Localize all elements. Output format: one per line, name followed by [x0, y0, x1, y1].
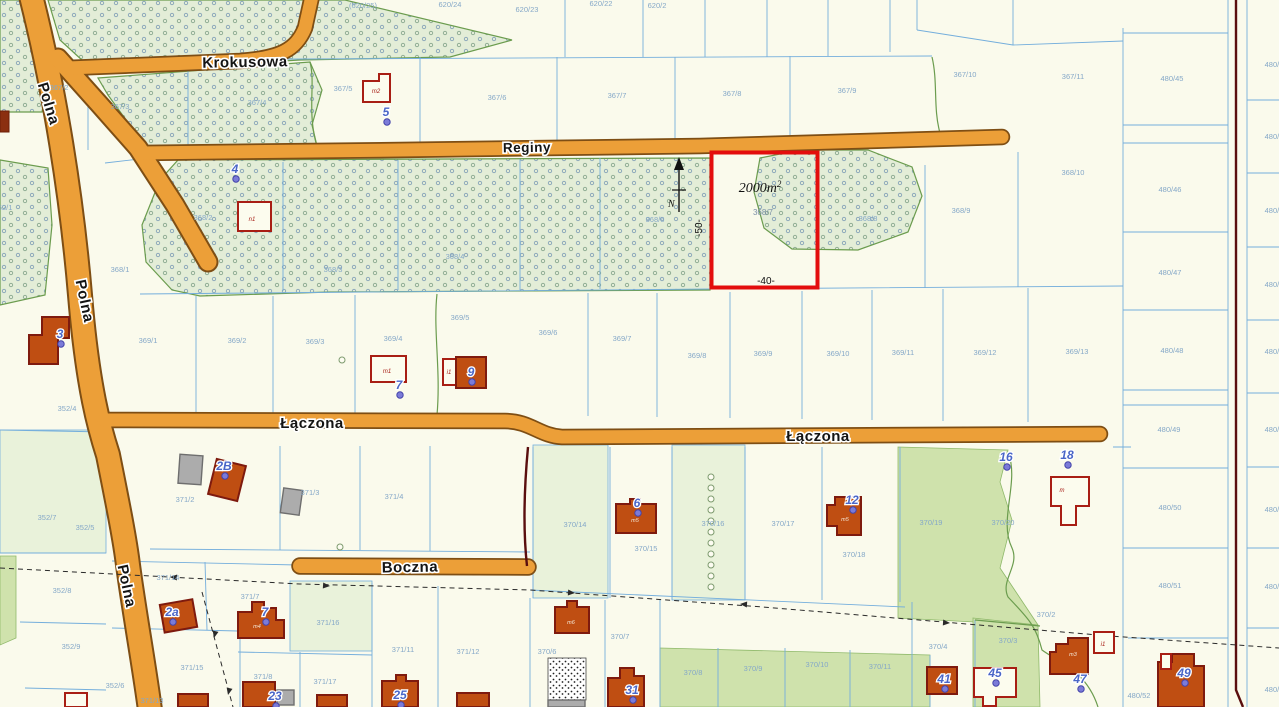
- building-bottom-left: [65, 693, 87, 707]
- house-number: 3: [57, 327, 64, 341]
- house-number: 12: [845, 493, 859, 507]
- house-number: 9: [468, 365, 475, 379]
- survey-circle: [708, 562, 714, 568]
- house-number: 6: [634, 496, 641, 510]
- parcel-label: 370/15: [635, 544, 658, 553]
- house-number: 23: [267, 689, 282, 703]
- parcel-label: 369/6: [539, 328, 558, 337]
- parcel-371-16-green: [290, 581, 372, 651]
- parcel-label: 369/7: [613, 334, 632, 343]
- building-label: m5: [631, 518, 640, 524]
- building-label: m3: [1069, 652, 1078, 658]
- parcel-label: 369/4: [384, 334, 403, 343]
- parcel-label: 371/4: [385, 492, 404, 501]
- house-number: 16: [999, 450, 1013, 464]
- house-number-marker: [58, 341, 64, 347]
- parcel-label: 369/1: [139, 336, 158, 345]
- building-west-edge: [0, 111, 9, 132]
- house-number-marker: [222, 473, 228, 479]
- house-number-marker: [273, 703, 279, 707]
- parcel-label: 370/17: [772, 519, 795, 528]
- house-number-marker: [850, 507, 856, 513]
- survey-circle: [708, 529, 714, 535]
- survey-circle: [708, 540, 714, 546]
- survey-circle: [708, 551, 714, 557]
- parcel-label: 620/23: [516, 5, 539, 14]
- survey-circle: [708, 573, 714, 579]
- building-label: i1: [447, 370, 452, 376]
- building-bottom-2: [317, 695, 347, 707]
- parcel-label: 480/4: [1265, 347, 1279, 356]
- survey-circle: [708, 584, 714, 590]
- orchard-368-row: [142, 158, 710, 296]
- house-number: 45: [987, 666, 1002, 680]
- parcel-label: 480/4: [1265, 582, 1279, 591]
- house-number-marker: [942, 686, 948, 692]
- building-label: n1: [249, 217, 256, 223]
- map-canvas[interactable]: (620/25)620/24620/23620/22620/2367/2367/…: [0, 0, 1279, 707]
- parcel-label: 352/1: [0, 203, 12, 212]
- parcel-label: 480/4: [1265, 505, 1279, 514]
- parcel-label: 370/7: [611, 632, 630, 641]
- house-number-marker: [1065, 462, 1071, 468]
- bottom-strip-green: [660, 648, 930, 707]
- building-under-construction: [548, 658, 586, 700]
- survey-circle: [708, 496, 714, 502]
- parcel-label: 370/6: [538, 647, 557, 656]
- parcel-label: 370/3: [999, 636, 1018, 645]
- survey-circle: [337, 544, 343, 550]
- parcel-label: 370/8: [684, 668, 703, 677]
- parcel-label: 370/10: [806, 660, 829, 669]
- house-number-marker: [635, 510, 641, 516]
- building-gray-1: [178, 454, 203, 485]
- parcel-label: 352/6: [106, 681, 125, 690]
- building-bottom-gray: [548, 700, 585, 707]
- parcel-label: 371/2: [176, 495, 195, 504]
- highlight-depth-label: -50-: [694, 219, 705, 237]
- parcel-label: 371/16: [317, 618, 340, 627]
- parcel-label: 371/15: [181, 663, 204, 672]
- house-number: 31: [625, 683, 639, 697]
- parcel-label: 480/45: [1161, 74, 1184, 83]
- house-number: 41: [936, 672, 951, 686]
- house-number-marker: [1004, 464, 1010, 470]
- building-gray-2: [280, 488, 302, 515]
- parcel-label: 368/4: [446, 252, 465, 261]
- parcel-label: 480/4: [1265, 206, 1279, 215]
- highlight-area-label: 2000m2: [739, 179, 782, 196]
- house-number-marker: [398, 702, 404, 707]
- parcel-label: 371/3: [301, 488, 320, 497]
- parcel-label: 369/13: [1066, 347, 1089, 356]
- parcel-label: 370/4: [929, 642, 948, 651]
- parcel-label: 352/5: [76, 523, 95, 532]
- orchard-west-strip: [0, 160, 52, 305]
- parcel-label: 480/4: [1265, 60, 1279, 69]
- parcel-label: 371/17: [314, 677, 337, 686]
- street-label: Łączona: [280, 415, 344, 432]
- parcel-label: 480/49: [1158, 425, 1181, 434]
- parcel-label: 369/12: [974, 348, 997, 357]
- parcel-label: 368/1: [111, 265, 130, 274]
- survey-circle: [708, 507, 714, 513]
- cadastral-map[interactable]: (620/25)620/24620/23620/22620/2367/2367/…: [0, 0, 1279, 707]
- parcel-label: 480/4: [1265, 280, 1279, 289]
- parcel-label: 480/47: [1159, 268, 1182, 277]
- parcel-label: 371/7: [241, 592, 260, 601]
- parcel-label: 370/16: [702, 519, 725, 528]
- parcel-label: 367/7: [608, 91, 627, 100]
- survey-circle: [708, 485, 714, 491]
- parcel-label: 352/4: [58, 404, 77, 413]
- parcel-label: 367/5: [334, 84, 353, 93]
- parcel-label: 352/9: [62, 642, 81, 651]
- parcel-label: 369/9: [754, 349, 773, 358]
- house-number-marker: [263, 619, 269, 625]
- parcel-label: 370/14: [564, 520, 587, 529]
- building-bottom-3: [457, 693, 489, 707]
- parcel-label: 480/50: [1159, 503, 1182, 512]
- parcel-label: 371/14: [157, 573, 180, 582]
- house-number: 18: [1060, 448, 1074, 462]
- parcel-label: 480/52: [1128, 691, 1151, 700]
- street-label: Łączona: [786, 428, 850, 445]
- parcel-label: 371/8: [254, 672, 273, 681]
- house-number: 25: [392, 688, 407, 702]
- parcel-label: 368/6: [646, 215, 665, 224]
- house-number: 47: [1072, 672, 1088, 686]
- parcel-label: (620/25): [349, 1, 377, 10]
- survey-circle: [339, 357, 345, 363]
- green-sliver-west: [0, 556, 16, 645]
- building-label: m: [1060, 488, 1065, 494]
- survey-circle: [708, 474, 714, 480]
- building-label: m4: [253, 624, 261, 630]
- house-number-marker: [1182, 680, 1188, 686]
- parcel-label: 369/10: [827, 349, 850, 358]
- building-label: m1: [383, 369, 391, 375]
- house-number-marker: [170, 619, 176, 625]
- street-label: Reginy: [503, 140, 551, 156]
- house-number-marker: [993, 680, 999, 686]
- parcel-label: 371/13: [141, 696, 164, 705]
- parcel-label: 368/2: [194, 213, 213, 222]
- parcel-label: 620/22: [590, 0, 613, 8]
- parcel-label: 367/9: [838, 86, 857, 95]
- parcel-label: 369/5: [451, 313, 470, 322]
- parcel-label: 480/46: [1159, 185, 1182, 194]
- parcel-label: 480/6: [1265, 685, 1279, 694]
- parcel-label: 367/4: [248, 98, 267, 107]
- parcel-label: 480/48: [1161, 346, 1184, 355]
- house-number-marker: [397, 392, 403, 398]
- parcel-label: 369/3: [306, 337, 325, 346]
- parcel-label: 368/8: [859, 214, 878, 223]
- house-number: 4: [231, 162, 239, 176]
- house-number-marker: [469, 379, 475, 385]
- parcel-label: 369/11: [892, 348, 914, 357]
- parcel-label: 368/9: [952, 206, 971, 215]
- parcel-label: 369/8: [688, 351, 707, 360]
- house-number-marker: [630, 697, 636, 703]
- building-label: m2: [372, 89, 381, 95]
- parcel-label: 367/3: [111, 102, 130, 111]
- parcel-label: 371/11: [392, 645, 414, 654]
- parcel-label: 370/2: [1037, 610, 1056, 619]
- parcel-label: 368/3: [324, 265, 343, 274]
- parcel-label: 370/19: [920, 518, 943, 527]
- parcel-label: 352/7: [38, 513, 57, 522]
- parcel-label: 480/51: [1159, 581, 1182, 590]
- parcel-label: 480/4: [1265, 132, 1279, 141]
- house-number-marker: [233, 176, 239, 182]
- house-number-marker: [1078, 686, 1084, 692]
- house-number: 2a: [164, 605, 179, 619]
- parcel-label: 370/20: [992, 518, 1015, 527]
- parcel-label: 371/12: [457, 647, 480, 656]
- house-number: 49: [1176, 666, 1191, 680]
- highlight-parcel-number: 368/7: [753, 208, 774, 217]
- highlight-width-label: -40-: [757, 276, 775, 287]
- orchard-blob: [754, 150, 922, 250]
- parcel-label: 367/10: [954, 70, 977, 79]
- parcel-label: 620/2: [648, 1, 667, 10]
- parcel-label: 369/2: [228, 336, 247, 345]
- building-label: i1: [1101, 642, 1106, 648]
- building-label: m5: [841, 517, 850, 523]
- parcel-label: 367/11: [1062, 72, 1084, 81]
- parcel-label: 367/8: [723, 89, 742, 98]
- parcel-label: 480/4: [1265, 425, 1279, 434]
- parcel-label: 368/10: [1062, 168, 1085, 177]
- street-label: Boczna: [382, 559, 439, 577]
- building-49-annex: [1161, 654, 1171, 669]
- house-number: 2B: [215, 459, 232, 473]
- parcel-label: 370/9: [744, 664, 763, 673]
- house-number: 5: [383, 105, 390, 119]
- street-label: Krokusowa: [202, 53, 288, 71]
- parcel-label: 367/6: [488, 93, 507, 102]
- parcel-352-7-green: [0, 430, 106, 553]
- house-number-marker: [384, 119, 390, 125]
- building-label: m6: [567, 620, 576, 626]
- building-bottom-1: [178, 694, 208, 707]
- parcel-label: 620/24: [439, 0, 462, 9]
- parcel-label: 370/11: [869, 662, 891, 671]
- north-label: N: [667, 199, 676, 210]
- parcel-label: 370/18: [843, 550, 866, 559]
- parcel-label: 352/8: [53, 586, 72, 595]
